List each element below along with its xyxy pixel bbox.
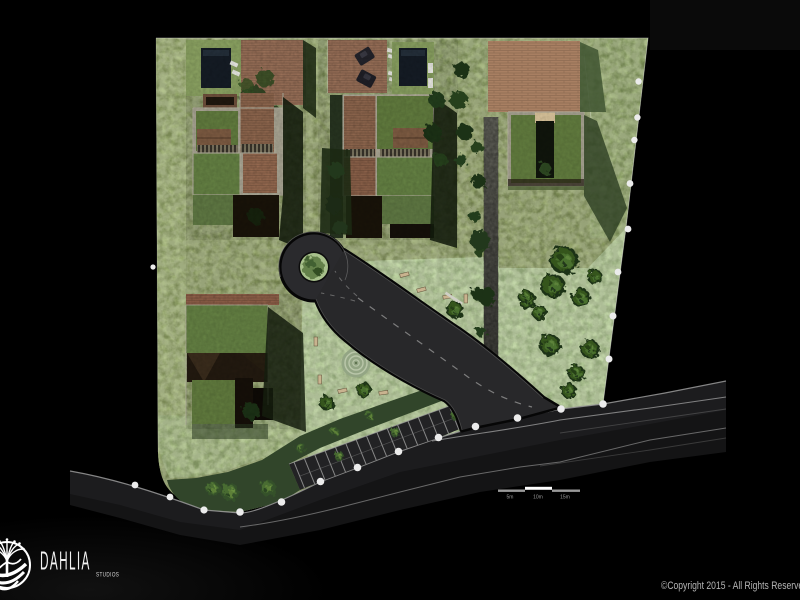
svg-text:DAHLIA: DAHLIA (40, 547, 91, 575)
svg-text:5m: 5m (507, 495, 514, 501)
svg-text:15m: 15m (560, 495, 570, 501)
svg-text:STUDIOS: STUDIOS (96, 572, 119, 579)
svg-text:©Copyright 2015 - All Rights R: ©Copyright 2015 - All Rights Reserved (661, 580, 800, 592)
svg-text:10m: 10m (533, 495, 543, 501)
